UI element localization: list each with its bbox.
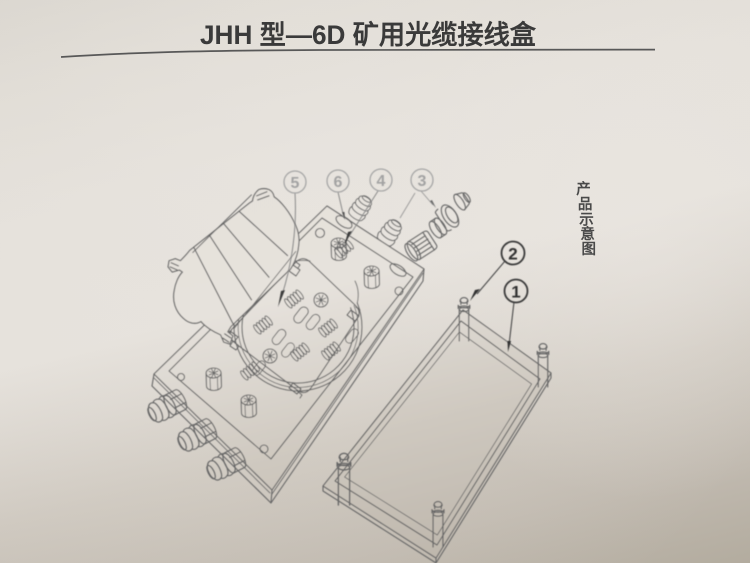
svg-text:图: 图 bbox=[582, 241, 597, 258]
svg-text:示: 示 bbox=[579, 211, 594, 228]
svg-text:3: 3 bbox=[418, 173, 427, 190]
svg-text:2: 2 bbox=[508, 245, 517, 264]
svg-text:5: 5 bbox=[291, 175, 300, 192]
svg-text:6: 6 bbox=[334, 174, 343, 191]
svg-text:品: 品 bbox=[578, 196, 593, 213]
svg-text:JHH 型—6D 矿用光缆接线盒: JHH 型—6D 矿用光缆接线盒 bbox=[200, 20, 536, 50]
svg-text:产: 产 bbox=[576, 180, 591, 198]
svg-text:4: 4 bbox=[377, 173, 386, 190]
svg-text:意: 意 bbox=[580, 225, 595, 243]
svg-text:1: 1 bbox=[511, 283, 520, 302]
